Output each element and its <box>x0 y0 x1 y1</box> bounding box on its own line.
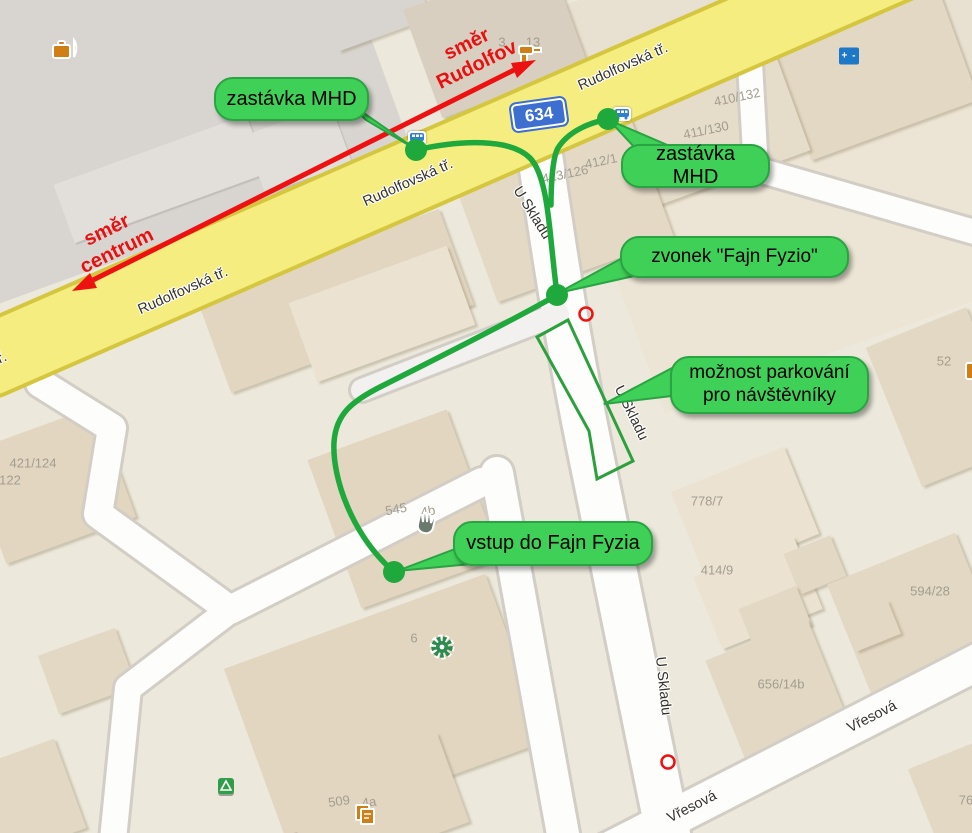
red-circle-marker <box>580 308 593 321</box>
entrance-dot <box>383 561 405 583</box>
red-circle-marker <box>662 756 675 769</box>
callout-entrance: vstup do Fajn Fyzia <box>453 521 653 566</box>
bus-stop-dot <box>597 108 619 130</box>
route-dots <box>383 108 619 583</box>
callout-bus-stop-2: zastávka MHD <box>621 144 770 188</box>
callout-parking: možnost parkování pro návštěvníky <box>670 356 869 414</box>
callout-doorbell: zvonek "Fajn Fyzio" <box>620 236 849 278</box>
annotation-layer <box>0 0 972 833</box>
route-lines <box>334 119 608 572</box>
doorbell-dot <box>546 284 568 306</box>
route-from-stop-1 <box>416 143 557 295</box>
bus-stop-dot <box>405 139 427 161</box>
map-viewport[interactable]: Rudolfovská tř. Rudolfovská tř. Rudolfov… <box>0 0 972 833</box>
callout-bus-stop-1: zastávka MHD <box>214 77 369 121</box>
route-from-stop-2 <box>551 119 608 205</box>
